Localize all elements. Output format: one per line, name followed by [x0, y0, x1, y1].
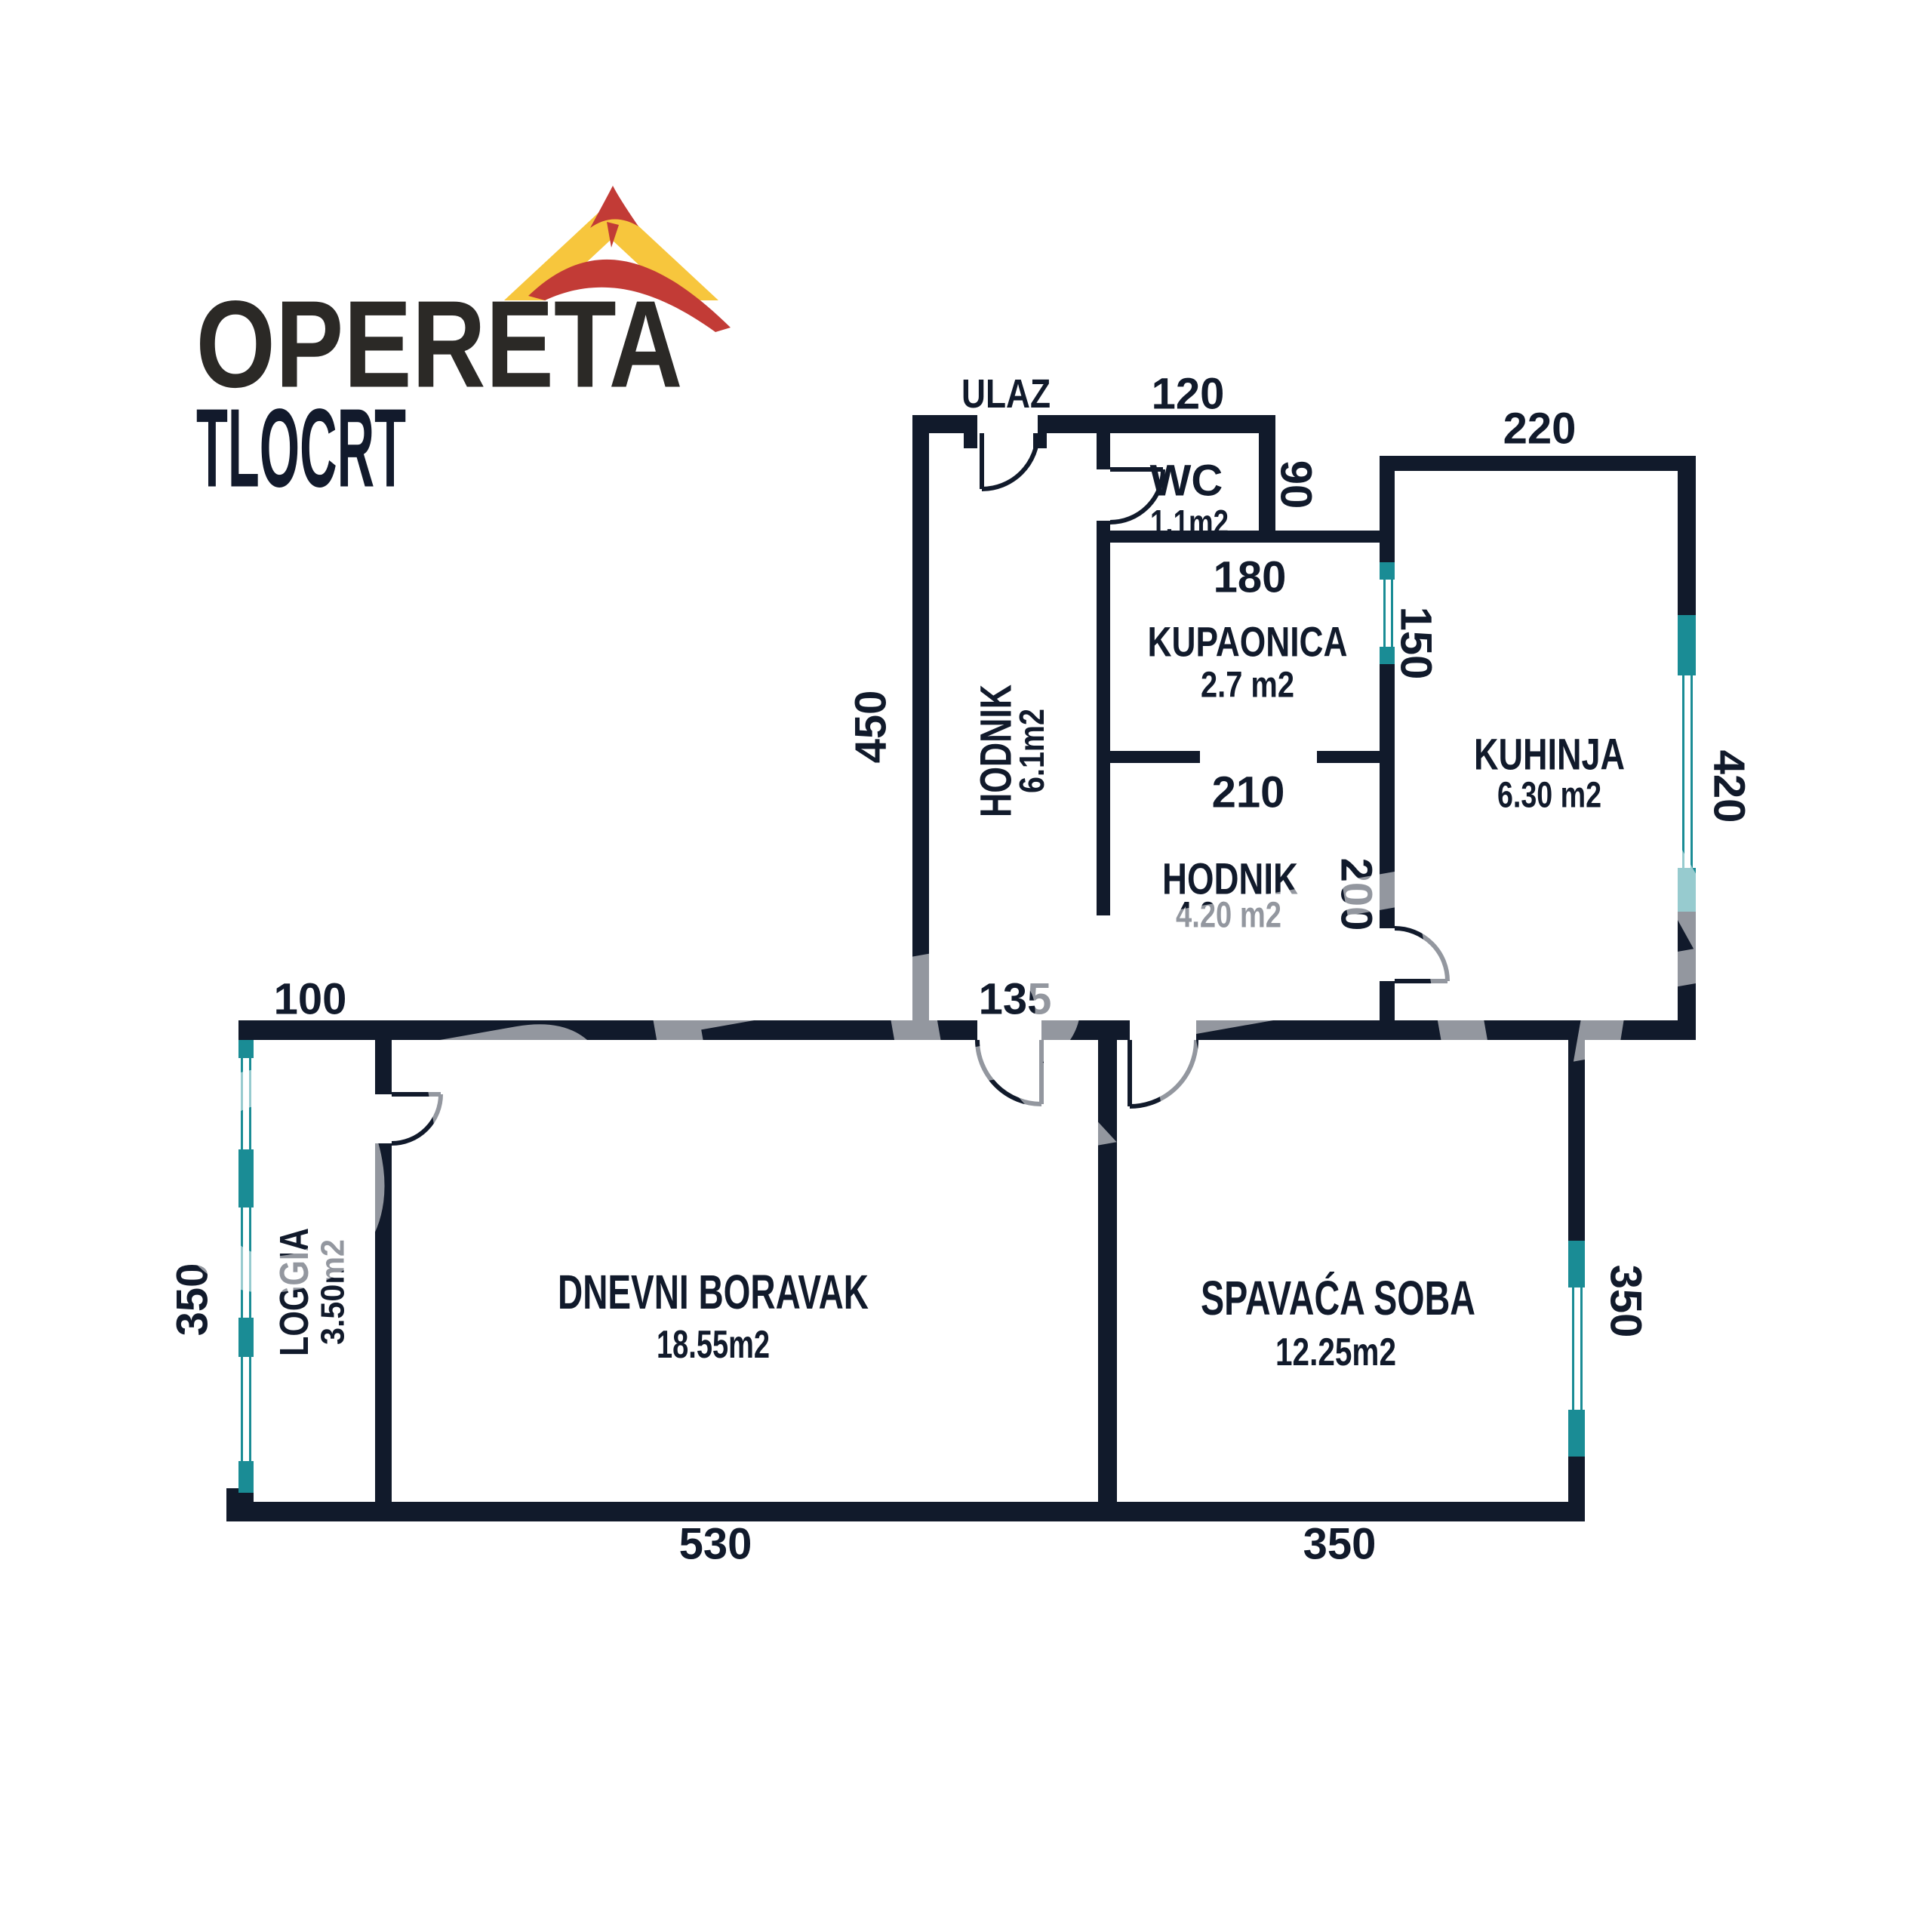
wall [1380, 456, 1696, 471]
dim-kuhinja-width: 220 [1503, 405, 1577, 454]
wall [226, 1488, 254, 1521]
room-area-wc: 1.1m2 [1150, 503, 1229, 542]
bedroom-window [1568, 1241, 1585, 1457]
room-area-spavaca-soba: 12.25m2 [1275, 1331, 1396, 1374]
dim-hodnik2-width: 210 [1212, 768, 1285, 817]
wall [1097, 751, 1200, 763]
dim-hodnik1-height: 450 [847, 691, 896, 764]
dim-spavaca-height: 350 [1601, 1265, 1651, 1338]
wall [1317, 751, 1395, 763]
entry-door [982, 433, 1038, 489]
entrance-label: ULAZ [961, 371, 1051, 417]
dim-spavaca-width: 350 [1303, 1520, 1377, 1569]
logo-subtitle: TLOCRT [196, 386, 406, 511]
room-label-spavaca-soba: SPAVAĆA SOBA [1201, 1271, 1475, 1325]
dim-bath-kitchen-window: 150 [1392, 607, 1441, 680]
wall [964, 433, 977, 448]
wall [1097, 531, 1395, 543]
dim-dnevni-width: 530 [679, 1520, 752, 1569]
wall [1678, 456, 1696, 615]
room-area-dnevni-boravak: 18.55m2 [657, 1323, 770, 1367]
dim-wc-width: 120 [1152, 370, 1225, 419]
dim-kupaonica-width: 180 [1214, 553, 1287, 602]
wall [1568, 1457, 1585, 1521]
room-area-kupaonica: 2.7 m2 [1201, 666, 1294, 706]
room-label-kupaonica: KUPAONICA [1148, 618, 1348, 666]
wall [226, 1502, 1585, 1521]
room-area-hodnik1: 6.1m2 [1012, 709, 1051, 793]
room-label-hodnik1-group: HODNIK 6.1m2 [972, 685, 1052, 817]
room-label-wc: WC [1150, 457, 1223, 506]
wall [1380, 456, 1395, 562]
tlocrt-floorplan: OPERETA TLOCRT [0, 0, 1932, 1932]
floorplan-page: OPERETA TLOCRT [0, 0, 1932, 1932]
dim-wc-height: 90 [1272, 460, 1321, 509]
wall [1097, 433, 1110, 469]
logo: OPERETA TLOCRT [196, 186, 731, 511]
